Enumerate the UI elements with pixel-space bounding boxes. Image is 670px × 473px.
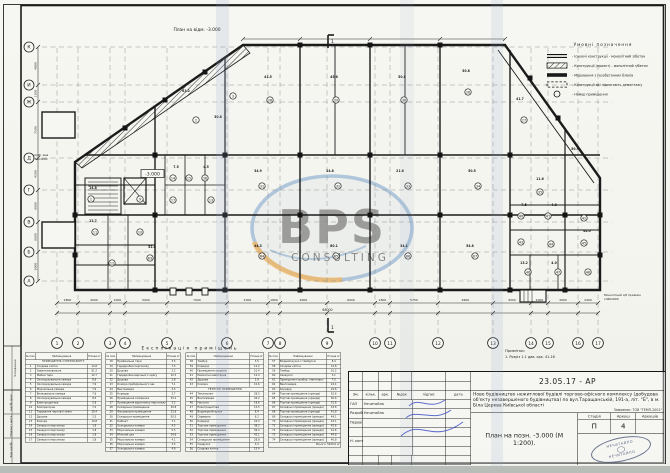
- dimension-value: 1800: [270, 298, 278, 302]
- axis-number: 10: [372, 341, 378, 347]
- legend-item: - Конструкції (проект) - монолітний з/бе…: [547, 63, 648, 68]
- legend-item: - Номер приміщення: [554, 91, 608, 97]
- dimension-value: 6000: [347, 298, 355, 302]
- title-block-cell: [363, 372, 379, 381]
- project-description: Нове будівництво нежитлової будівлі торг…: [473, 392, 662, 409]
- sheet-title: План на позн. -3.000 (М 1:200).: [471, 413, 578, 465]
- room-area-label: 13.2: [520, 261, 528, 265]
- room-area-label: 11.6: [536, 177, 544, 181]
- notes-title: Примітки:: [505, 348, 525, 353]
- explication-col-header: Найменування: [279, 353, 327, 360]
- signature-col-header: №док: [392, 391, 412, 400]
- dimension-value: 4000: [90, 298, 98, 302]
- room-number: 33: [406, 184, 410, 188]
- sheet-number: 4: [611, 420, 636, 434]
- signature-role: Перевір.: [349, 418, 363, 427]
- room-area-label: 4.8: [551, 203, 556, 207]
- stage-value: П: [578, 420, 611, 434]
- room-number: 45: [582, 241, 586, 245]
- signature-role: ГАП: [349, 400, 363, 409]
- explication-title: Експлікація приміщень: [85, 346, 295, 351]
- room-number: 47: [556, 270, 560, 274]
- dimension-value: 2400: [584, 298, 592, 302]
- legend: Умовні позначення - Існуючі конструкції …: [547, 42, 648, 97]
- room-number: 41: [546, 214, 550, 218]
- room-number: 30: [402, 98, 406, 102]
- room-area-label: 4.5: [203, 165, 208, 169]
- room-area-label: 34.1: [400, 244, 408, 248]
- top-dimension-line: [241, 37, 507, 41]
- explication-block: Експлікація приміщень № пом.Найменування…: [25, 346, 341, 466]
- margin-label: Узгоджено: [13, 359, 17, 376]
- signature-name: [363, 437, 413, 446]
- dimension-value: 2800: [64, 298, 72, 302]
- signature-role: [349, 446, 363, 455]
- room-area-label: 14.8: [89, 186, 97, 190]
- room-area-label: 50.5: [468, 169, 476, 173]
- date-field: [446, 446, 471, 455]
- date-field: [446, 437, 471, 446]
- title-block-cell: [349, 381, 363, 390]
- room-number: 1: [90, 197, 92, 201]
- room-number: 14: [171, 176, 175, 180]
- room-number: 48: [586, 270, 590, 274]
- signature-name: [363, 446, 413, 455]
- sheets-total: [636, 420, 664, 434]
- room-area-label: 7.5: [521, 203, 526, 207]
- room-area-label: 41.5: [264, 75, 272, 79]
- room-number: 42: [582, 216, 586, 220]
- room-number: 63: [148, 256, 152, 260]
- title-block-cell: [379, 456, 392, 465]
- stage-header-row: Стадія Аркуш Аркушів: [578, 413, 664, 420]
- signature-role: Н. контр.: [349, 437, 363, 446]
- title-block-cell: [392, 372, 412, 381]
- client-name: Замовник: ТОВ "ТЕМП-2001": [614, 408, 662, 412]
- room-number: 17: [171, 198, 175, 202]
- room-number: 34: [476, 184, 480, 188]
- room-number: 43: [519, 240, 523, 244]
- signature-field: [412, 437, 446, 446]
- explication-table-2: № пом.НайменуванняПлоща м²18Приймальна т…: [106, 353, 181, 452]
- room-number: 66: [406, 254, 410, 258]
- signature-role: [349, 428, 363, 437]
- legend-item-label: - Конструкції (проект) - монолітний з/бе…: [572, 64, 648, 68]
- room-number: 29: [334, 98, 338, 102]
- dimension-value: 6000: [34, 202, 38, 210]
- signature-field: [412, 409, 446, 418]
- stamp-cell: НЕЧИТАЙЛО НЕЧИТАЙЛО: [578, 434, 664, 465]
- plan-title-label: План на відм. -3.000: [173, 27, 220, 33]
- title-block: Зм.кільк.арк.№докпідписдатаГАПНечитайлоР…: [348, 371, 664, 464]
- signature-field: [412, 400, 446, 409]
- signature-name: [363, 428, 413, 437]
- explication-col-header: Найменування: [36, 353, 87, 360]
- axis-letter: Д: [27, 156, 31, 162]
- drawing-sheet: УзгодженоІнв.№ ориг.Підпис і датаЗам.інв…: [0, 0, 670, 466]
- explication-table-3: № пом.НайменуванняПлоща м²38Тамбур3.539К…: [186, 353, 264, 452]
- signature-col-header: підпис: [412, 391, 446, 400]
- room-number: 35: [538, 190, 542, 194]
- explication-col-header: № пом.: [106, 353, 117, 360]
- room-area-label: 30.8: [462, 69, 470, 73]
- explication-col-header: Площа м²: [87, 353, 101, 360]
- legend-item-label: - Існуючі конструкції - монолітний з/бет…: [572, 54, 645, 58]
- explication-col-header: Площа м²: [327, 353, 341, 360]
- explication-col-header: Площа м²: [166, 353, 180, 360]
- room-area-label: 50.8: [398, 75, 406, 79]
- dimension-value: 4300: [244, 298, 252, 302]
- entry-note-line2: 1460х600: [604, 297, 619, 301]
- explication-col-header: № пом.: [25, 353, 36, 360]
- project-description-cell: Нове будівництво нежитлової будівлі торг…: [471, 391, 664, 413]
- margin-label: Зам.інв.№: [9, 442, 13, 458]
- round-stamp: НЕЧИТАЙЛО НЕЧИТАЙЛО: [589, 431, 654, 467]
- dimension-value: 5000: [142, 298, 150, 302]
- room-number: 9: [139, 197, 141, 201]
- bps-watermark: BPS CONSULTING: [252, 176, 412, 280]
- svg-text:1: 1: [331, 325, 334, 331]
- signature-col-header: дата: [446, 391, 471, 400]
- title-block-cell: [363, 456, 379, 465]
- room-number: 65: [334, 254, 338, 258]
- signature-field: [412, 446, 446, 455]
- title-block-cell: [446, 456, 471, 465]
- room-area-label: 21.6: [396, 169, 404, 173]
- room-number: 10: [138, 230, 142, 234]
- explication-col-header: № пом.: [268, 353, 279, 360]
- room-area-label: 24.8: [326, 169, 334, 173]
- room-number: 27: [522, 118, 526, 122]
- title-block-cell: [379, 381, 392, 390]
- watermark-sub-text: CONSULTING: [291, 252, 389, 264]
- date-field: [446, 400, 471, 409]
- title-block-cell: [349, 456, 363, 465]
- room-number: 26: [466, 90, 470, 94]
- room-number: 40: [519, 214, 523, 218]
- title-block-cell: [363, 381, 379, 390]
- room-area-label: 12.7: [89, 219, 97, 223]
- room-number: 13: [209, 198, 213, 202]
- table-row: 17Санвузол персоналу1.8: [25, 438, 101, 443]
- signature-role: Розроб.: [349, 409, 363, 418]
- room-number: 2: [195, 118, 197, 122]
- explication-table-4: № пом.НайменуванняПлоща м²57Вхідний вузо…: [268, 353, 341, 448]
- room-area-label: 52.8: [148, 245, 156, 249]
- axis-number: 16: [575, 341, 581, 347]
- room-number: 28: [268, 98, 272, 102]
- room-area-label: 34.9: [254, 169, 262, 173]
- axis-number: 12: [435, 341, 441, 347]
- axis-letter: Б: [27, 250, 30, 256]
- margin-labels: УзгодженоІнв.№ ориг.Підпис і датаЗам.інв…: [9, 359, 17, 458]
- signature-col-header: арк.: [379, 391, 392, 400]
- room-number: 31: [260, 184, 264, 188]
- room-number: 32: [336, 184, 340, 188]
- signature-col-header: Зм.: [349, 391, 363, 400]
- explication-col-header: Площа м²: [250, 353, 264, 360]
- total-dimension: 68000: [322, 308, 332, 312]
- room-number: 64: [260, 254, 264, 258]
- title-block-cell: [412, 381, 446, 390]
- table-row: 56Сходова клітка15.4: [186, 447, 264, 452]
- signature-field: [412, 418, 446, 427]
- table-row: 37Холодильна камера4.6: [106, 447, 181, 452]
- date-field: [446, 428, 471, 437]
- title-block-cell: [446, 381, 471, 390]
- room-area-label: 61.2: [182, 89, 190, 93]
- margin-label: Інв.№ ориг.: [9, 393, 13, 411]
- signature-field: [412, 428, 446, 437]
- title-block-cell: [392, 456, 412, 465]
- room-area-label: 4.0: [551, 261, 556, 265]
- table-row: Всього: 5930,0 м²: [268, 442, 340, 447]
- axis-number: 17: [595, 341, 601, 347]
- legend-item-label: - Мурування з газобетонних блоків: [572, 73, 633, 77]
- stage-label: Стадія: [578, 413, 611, 420]
- room-number: 46: [526, 270, 530, 274]
- room-number: 67: [473, 254, 477, 258]
- axis-letter: Г: [28, 188, 31, 194]
- title-block-cell: [412, 456, 446, 465]
- explication-col-header: Найменування: [197, 353, 250, 360]
- title-block-cell: [349, 372, 363, 381]
- axis-letter: В: [27, 220, 30, 226]
- signature-name: [363, 418, 413, 427]
- dimension-value: 3600: [559, 298, 567, 302]
- legend-item: - Існуючі конструкції - монолітний з/бет…: [547, 54, 645, 58]
- sheet-label: Аркуш: [611, 413, 636, 420]
- explication-col-header: Найменування: [117, 353, 167, 360]
- dimension-value: 6000: [300, 298, 308, 302]
- room-area-label: 44.3: [254, 244, 262, 248]
- legend-item: - Мурування з газобетонних блоків: [547, 73, 633, 77]
- legend-item-label: - Конструкції які підлягають демонтажу: [572, 83, 642, 87]
- svg-text:1: 1: [331, 39, 334, 45]
- title-block-cell: [392, 381, 412, 390]
- room-number: 15: [187, 176, 191, 180]
- dimension-value: 2000: [114, 298, 122, 302]
- sheets-label: Аркушів: [636, 413, 664, 420]
- dimension-value: 1800: [379, 298, 387, 302]
- svg-text:-3.000: -3.000: [145, 172, 160, 178]
- dimension-value: 5750: [410, 298, 418, 302]
- room-area-label: 80.1: [330, 244, 338, 248]
- dimension-value: 1500: [34, 90, 38, 98]
- axis-number: 14: [528, 341, 534, 347]
- dimension-value: 2000: [536, 298, 544, 302]
- notes-line: 1. Розріз 1-1 див. арк. 41-16: [505, 355, 555, 359]
- dimension-value: 4800: [34, 62, 38, 70]
- room-number: 12: [110, 261, 114, 265]
- room-number: 11: [93, 230, 97, 234]
- signature-name: Нечитайло: [363, 400, 413, 409]
- explication-col-header: № пом.: [186, 353, 197, 360]
- axis-letter: Ж: [27, 100, 32, 106]
- dimension-value: 4500: [508, 298, 516, 302]
- title-block-cell: [379, 372, 392, 381]
- axis-letter: И: [27, 83, 30, 89]
- dimension-value: 6600: [462, 298, 470, 302]
- axis-number: 13: [490, 341, 496, 347]
- title-block-cell: [446, 372, 471, 381]
- axis-number: 11: [387, 341, 393, 347]
- new-construction-hatch: [75, 45, 250, 168]
- room-area-label: 50.9: [571, 147, 579, 151]
- dimension-value: 6000: [34, 233, 38, 241]
- room-area-label: 7.5: [173, 165, 178, 169]
- document-code: 23.05.17 - АР: [471, 372, 664, 391]
- room-area-label: 30.8: [214, 115, 222, 119]
- room-area-label: 45.6: [330, 75, 338, 79]
- stamp-text-bottom: НЕЧИТАЙЛО: [608, 450, 635, 459]
- dimension-value: 7000: [193, 298, 201, 302]
- title-block-cell: [412, 372, 446, 381]
- explication-table-1: № пом.НайменуванняПлоща м²ПРИМІЩЕННЯ СУП…: [25, 353, 102, 443]
- room-number: 3: [232, 94, 234, 98]
- date-field: [446, 418, 471, 427]
- signature-name: Нечитайло: [363, 409, 413, 418]
- title-block-signature-grid: Зм.кільк.арк.№докпідписдатаГАПНечитайлоР…: [349, 372, 471, 465]
- room-area-label: 41.7: [516, 97, 524, 101]
- stage-values-row: П 4: [578, 420, 664, 434]
- legend-title: Умовні позначення: [574, 42, 633, 47]
- dimension-value: 7500: [34, 126, 38, 134]
- dimension-value: 6000: [34, 263, 38, 271]
- date-field: [446, 409, 471, 418]
- dimension-value: 4500: [34, 170, 38, 178]
- room-area-label: 44.0: [583, 229, 591, 233]
- legend-item-label: - Номер приміщення: [572, 92, 608, 96]
- room-area-label: 54.8: [466, 244, 474, 248]
- room-number: 44: [549, 242, 553, 246]
- axis-number: 15: [545, 341, 551, 347]
- elevation-mark: -3.000: [141, 170, 164, 178]
- signature-col-header: кільк.: [363, 391, 379, 400]
- room-number: 16: [203, 176, 207, 180]
- margin-label: Підпис і дата: [9, 415, 13, 436]
- legend-item: - Конструкції які підлягають демонтажу: [547, 82, 642, 87]
